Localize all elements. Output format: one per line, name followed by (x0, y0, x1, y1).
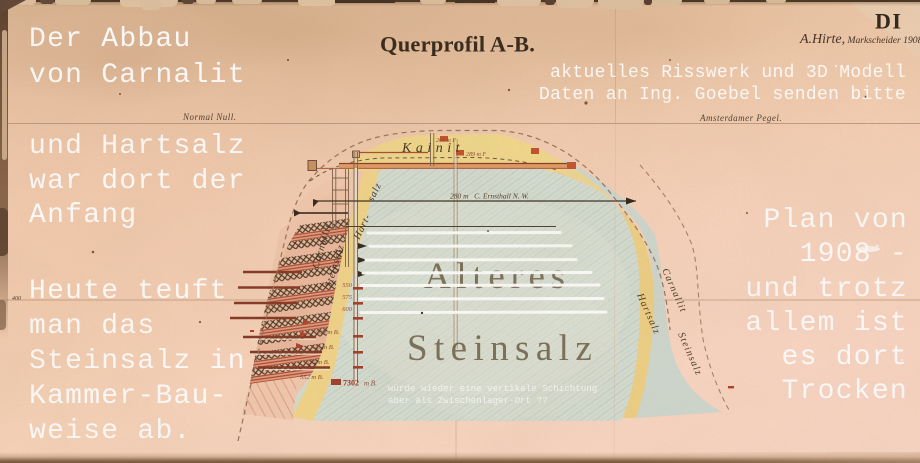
svg-text:509 m B.: 509 m B. (316, 329, 340, 336)
svg-text:400: 400 (12, 295, 21, 302)
svg-text:575: 575 (342, 294, 353, 301)
svg-text:Amsterdamer Pegel.: Amsterdamer Pegel. (699, 113, 782, 123)
svg-text:289 m F: 289 m F (466, 152, 486, 158)
svg-text:DI: DI (875, 9, 902, 34)
svg-text:Alteres: Alteres (424, 256, 571, 297)
svg-text:A.Hirte, Markscheider 1908.: A.Hirte, Markscheider 1908. (799, 32, 920, 47)
svg-text:204 m F: 204 m F (436, 137, 456, 144)
svg-text:Steinsalz: Steinsalz (407, 328, 598, 369)
svg-text:7302: 7302 (343, 379, 359, 388)
svg-text:280 m C. Ernsthall N. W.: 280 m C. Ernsthall N. W. (450, 192, 529, 201)
svg-text:Normal Null.: Normal Null. (182, 112, 237, 122)
svg-text:600: 600 (342, 306, 353, 313)
svg-text:535 m B.: 535 m B. (306, 359, 330, 366)
svg-text:Querprofil A-B.: Querprofil A-B. (380, 32, 535, 57)
svg-text:552 m B.: 552 m B. (300, 374, 324, 381)
svg-text:515 m B.: 515 m B. (311, 344, 335, 351)
svg-text:m B.: m B. (364, 380, 377, 388)
svg-text:550: 550 (342, 282, 353, 289)
